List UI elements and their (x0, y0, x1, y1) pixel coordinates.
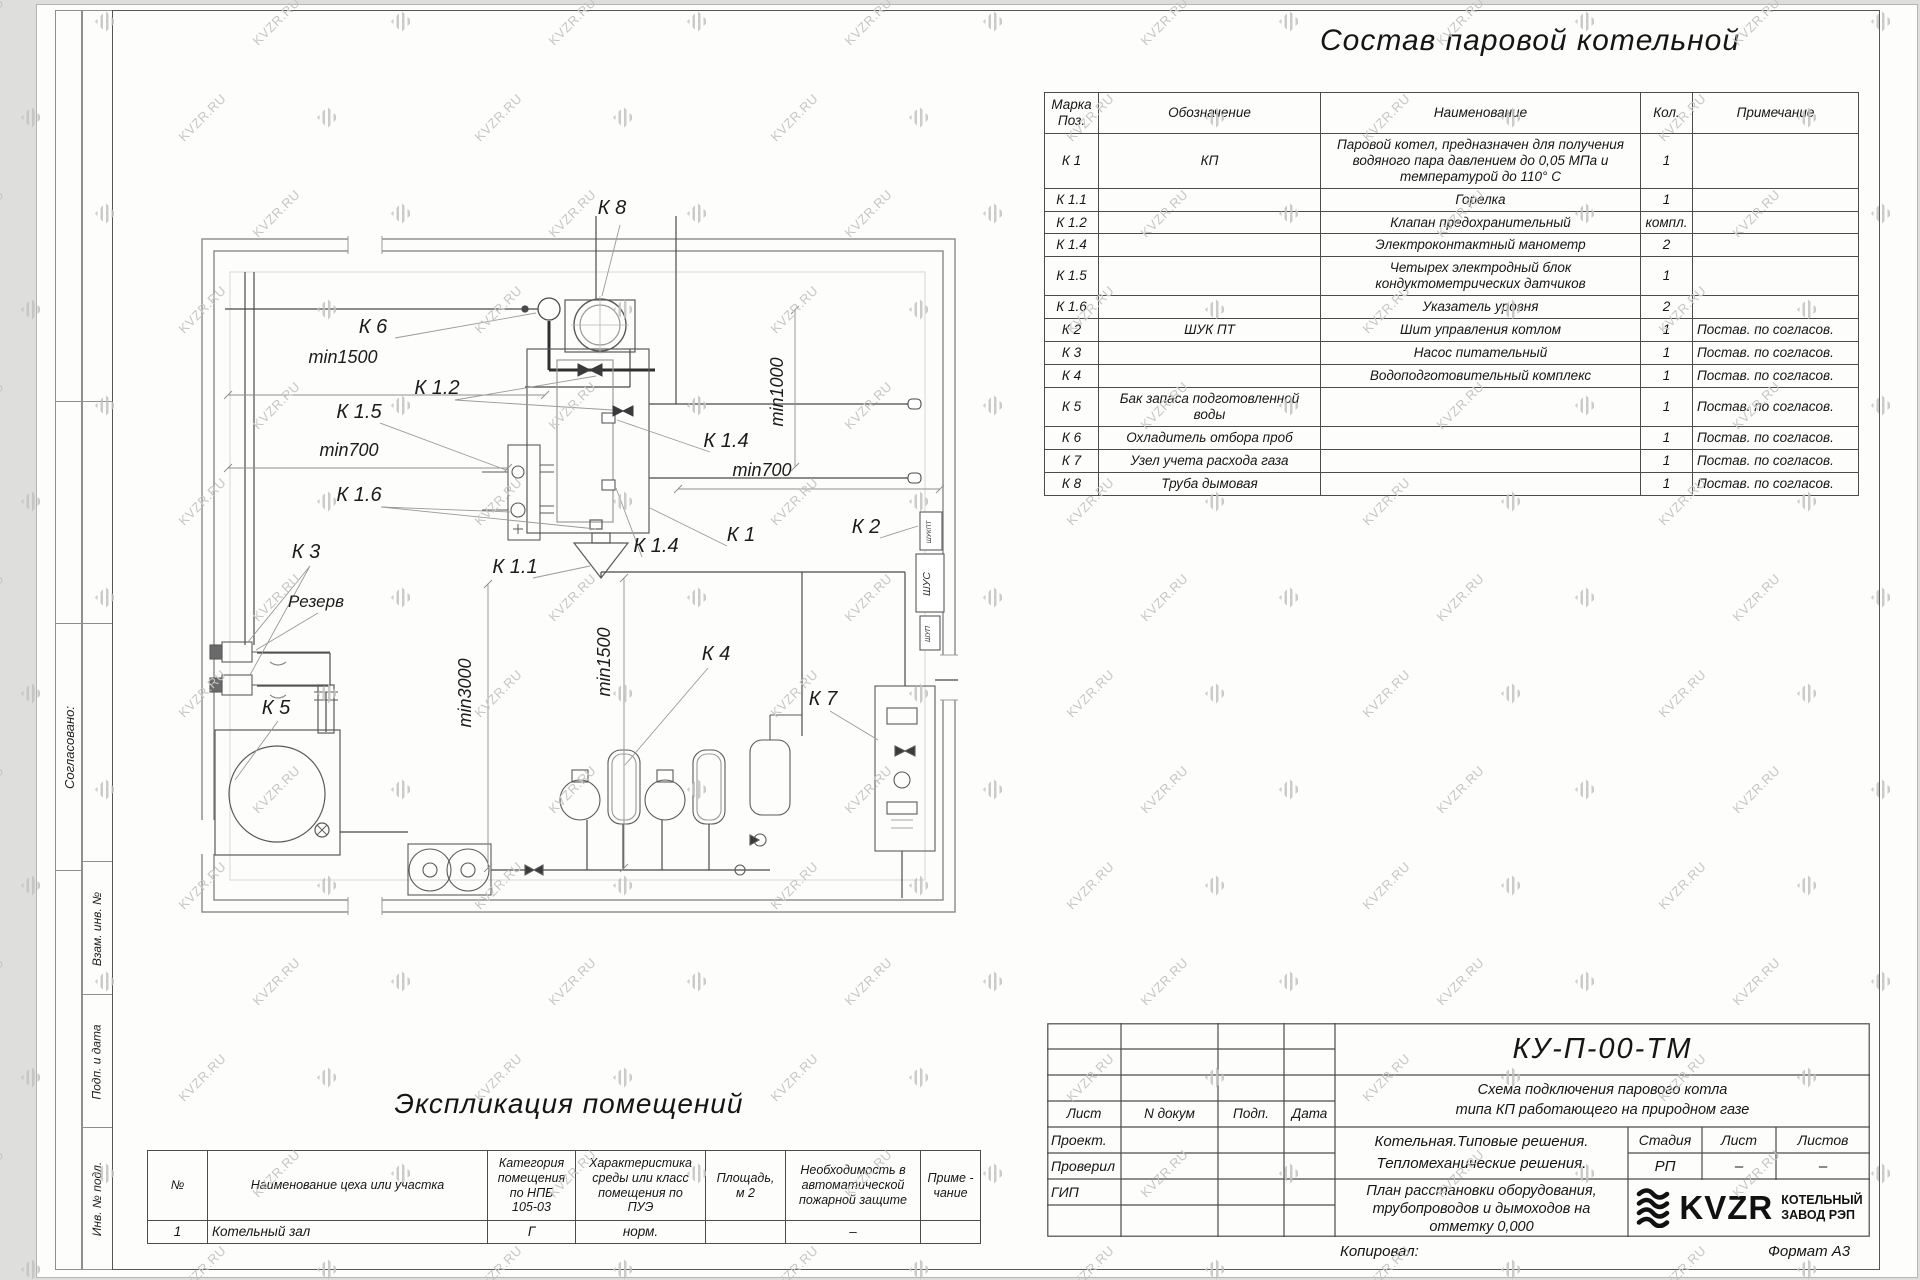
equipment-row: К 1.4Электроконтактный манометр2 (1045, 234, 1859, 257)
plan-label: К 3 (292, 541, 320, 563)
rooms-cell: 1 (148, 1221, 208, 1244)
equipment-cell (1099, 342, 1321, 365)
tb-sheet-title-1: План расстановки оборудования, (1337, 1183, 1626, 1199)
equipment-cell: Труба дымовая (1099, 472, 1321, 495)
divider (82, 401, 112, 402)
equipment-cell (1693, 234, 1859, 257)
plan-label: min1000 (767, 357, 787, 426)
equipment-cell: Указатель уровня (1321, 296, 1641, 319)
tb-doc-number: КУ-П-00-ТМ (1335, 1033, 1870, 1066)
plan-labels: К 8К 6min1500К 1.2К 1.5min700К 1.6К 1.4m… (262, 197, 880, 728)
equipment-cell: К 3 (1045, 342, 1099, 365)
rooms-row: 1Котельный залГнорм.– (148, 1221, 981, 1244)
plan-label: К 1 (727, 524, 755, 546)
plan-label: К 1.4 (633, 535, 678, 557)
vzam-label: Взам. инв. № (90, 891, 104, 965)
equipment-cell: 1 (1641, 319, 1693, 342)
equipment-cell (1099, 234, 1321, 257)
equipment-cell: Четырех электродный блок кондуктометриче… (1321, 257, 1641, 296)
podp-label: Подп. и дата (90, 1024, 104, 1099)
equipment-cell: К 6 (1045, 426, 1099, 449)
equipment-cell: Постав. по согласов. (1693, 364, 1859, 387)
equipment-cell (1693, 296, 1859, 319)
left-margin-strip-inner: Взам. инв. № Подп. и дата Инв. № подл. (81, 10, 113, 1270)
tb-sheets-value: – (1776, 1158, 1870, 1175)
inv-cell: Инв. № подл. (82, 1127, 112, 1269)
equipment-cell: К 2 (1045, 319, 1099, 342)
rooms-col-header: Необходимость в автоматической пожарной … (786, 1151, 921, 1221)
plan-label: min700 (319, 440, 378, 460)
equipment-cell: Водоподготовительный комплекс (1321, 364, 1641, 387)
tb-role-project: Проект. (1051, 1132, 1107, 1148)
rooms-table-wrap: №Наименование цеха или участкаКатегория … (147, 1150, 981, 1244)
tb-object-2: Тепломеханические решения. (1339, 1155, 1624, 1172)
equipment-cell (1321, 426, 1641, 449)
kvzr-logo-icon (1635, 1188, 1671, 1228)
equipment-row: К 6Охладитель отбора проб1Постав. по сог… (1045, 426, 1859, 449)
equipment-row: К 1.5Четырех электродный блок кондуктоме… (1045, 257, 1859, 296)
equipment-cell: Охладитель отбора проб (1099, 426, 1321, 449)
equipment-cell: Шит управления котлом (1321, 319, 1641, 342)
plan-piping (225, 216, 958, 898)
equipment-col-header: Примечание (1693, 93, 1859, 134)
plan-door-ticks (348, 236, 958, 915)
equipment-cell (1099, 211, 1321, 234)
equipment-cell: Постав. по согласов. (1693, 472, 1859, 495)
sensor-panel-k1-5 (482, 445, 554, 540)
equipment-cell: 1 (1641, 387, 1693, 426)
watermark-text: KVZR.RU (0, 955, 7, 1008)
equipment-cell: К 5 (1045, 387, 1099, 426)
tb-sheet-title-3: отметку 0,000 (1337, 1219, 1626, 1235)
equipment-cell: К 1.2 (1045, 211, 1099, 234)
plan-label: min700 (732, 460, 791, 480)
vzam-cell: Взам. инв. № (82, 861, 112, 995)
kvzr-logo-block: KVZR КОТЕЛЬНЫЙ ЗАВОД РЭП (1628, 1183, 1870, 1233)
equipment-cell (1693, 188, 1859, 211)
watermark-text: KVZR.RU (0, 0, 7, 48)
equipment-cell: Паровой котел, предназначен для получени… (1321, 133, 1641, 188)
tb-sheet-title-2: трубопроводов и дымоходов на (1337, 1201, 1626, 1217)
tb-sheets-label: Листов (1776, 1132, 1870, 1148)
rooms-cell: норм. (576, 1221, 706, 1244)
equipment-cell: Постав. по согласов. (1693, 449, 1859, 472)
equipment-cell: компл. (1641, 211, 1693, 234)
plan-label: К 1.4 (703, 430, 748, 452)
inv-label: Инв. № подл. (90, 1161, 104, 1235)
equipment-cell (1099, 257, 1321, 296)
tb-doc-title-1: Схема подключения парового котла (1335, 1082, 1870, 1098)
plan-label: К 1.2 (414, 377, 459, 399)
equipment-cell: К 4 (1045, 364, 1099, 387)
rooms-col-header: Приме - чание (921, 1151, 981, 1221)
plan-label: К 7 (809, 688, 838, 710)
pipe-endcaps (908, 399, 921, 483)
cabinet-label: ШУС (921, 572, 933, 596)
equipment-col-header: Кол. (1641, 93, 1693, 134)
equipment-cell: Узел учета расхода газа (1099, 449, 1321, 472)
watermark-text: KVZR.RU (0, 187, 7, 240)
sample-cooler-k6 (522, 298, 560, 320)
rooms-col-header: Наименование цеха или участка (208, 1151, 488, 1221)
plan-label: К 1.1 (492, 556, 537, 578)
equipment-row: К 1.2Клапан предохранительныйкомпл. (1045, 211, 1859, 234)
rooms-table: №Наименование цеха или участкаКатегория … (147, 1150, 981, 1244)
rooms-col-header: № (148, 1151, 208, 1221)
plan-label: К 2 (852, 516, 880, 538)
equipment-cell (1099, 296, 1321, 319)
equipment-cell: 1 (1641, 426, 1693, 449)
equipment-row: К 4Водоподготовительный комплекс1Постав.… (1045, 364, 1859, 387)
tb-stage-value: РП (1628, 1158, 1702, 1175)
watermark-text: KVZR.RU (0, 763, 7, 816)
tb-stage-label: Стадия (1628, 1132, 1702, 1148)
tb-sheet-label: Лист (1702, 1132, 1776, 1148)
plan-label: min1500 (308, 347, 377, 367)
rooms-cell: – (786, 1221, 921, 1244)
water-treatment-k4 (525, 715, 802, 875)
tb-role-gip: ГИП (1051, 1184, 1079, 1200)
equipment-cell: 1 (1641, 472, 1693, 495)
equipment-cell: К 1.4 (1045, 234, 1099, 257)
tb-sheet-value: – (1702, 1158, 1776, 1175)
twin-pump-unit (408, 844, 491, 895)
equipment-cell: 1 (1641, 342, 1693, 365)
plan-label: Резерв (288, 592, 344, 611)
equipment-cell (1693, 133, 1859, 188)
format-label: Формат А3 (1768, 1243, 1850, 1260)
plan-label: min3000 (455, 658, 475, 727)
equipment-row: К 8Труба дымовая1Постав. по согласов. (1045, 472, 1859, 495)
feed-pumps-k3 (210, 642, 330, 698)
divider (56, 401, 82, 402)
rooms-col-header: Категория помещения по НПБ 105-03 (488, 1151, 576, 1221)
tb-col-sign: Подп. (1218, 1106, 1284, 1121)
left-margin-strip-outer: Согласовано: (55, 10, 83, 1270)
agreed-cell: Согласовано: (56, 623, 82, 871)
dimension-lines (224, 306, 944, 872)
equipment-cell: 1 (1641, 188, 1693, 211)
plan-label: К 6 (359, 316, 388, 338)
equipment-cell: К 1.5 (1045, 257, 1099, 296)
equipment-row: К 3Насос питательный1Постав. по согласов… (1045, 342, 1859, 365)
equipment-cell: Бак запаса подготовленной воды (1099, 387, 1321, 426)
equipment-cell: 1 (1641, 449, 1693, 472)
kvzr-sub-1: КОТЕЛЬНЫЙ (1781, 1193, 1862, 1208)
equipment-cell: Постав. по согласов. (1693, 319, 1859, 342)
equipment-table-wrap: Марка Поз.ОбозначениеНаименованиеКол.При… (1044, 92, 1859, 496)
tb-object-1: Котельная.Типовые решения. (1339, 1133, 1624, 1150)
boiler-k1 (527, 296, 649, 578)
equipment-cell (1693, 257, 1859, 296)
equipment-cell: 1 (1641, 257, 1693, 296)
plan-label: min1500 (594, 627, 614, 696)
equipment-cell: К 8 (1045, 472, 1099, 495)
title-block: Лист N докум Подп. Дата Проект. Проверил… (1047, 1023, 1870, 1237)
tb-doc-title-2: типа КП работающего на природном газе (1335, 1102, 1870, 1118)
equipment-cell (1321, 472, 1641, 495)
equipment-cell: К 1.1 (1045, 188, 1099, 211)
equipment-row: К 2ШУК ПТШит управления котлом1Постав. п… (1045, 319, 1859, 342)
equipment-row: К 5Бак запаса подготовленной воды1Постав… (1045, 387, 1859, 426)
equipment-cell: К 1 (1045, 133, 1099, 188)
equipment-row: К 7Узел учета расхода газа1Постав. по со… (1045, 449, 1859, 472)
equipment-list-title: Состав паровой котельной (1230, 24, 1830, 58)
equipment-cell: Постав. по согласов. (1693, 426, 1859, 449)
plan-label: К 1.5 (336, 401, 382, 423)
agreed-label: Согласовано: (62, 706, 77, 789)
rooms-col-header: Характеристика среды или класс помещения… (576, 1151, 706, 1221)
equipment-col-header: Обозначение (1099, 93, 1321, 134)
kvzr-logo-subtext: КОТЕЛЬНЫЙ ЗАВОД РЭП (1781, 1193, 1862, 1223)
copied-label: Копировал: (1340, 1243, 1419, 1260)
equipment-cell (1099, 188, 1321, 211)
plan-door-gaps (199, 236, 958, 915)
equipment-col-header: Наименование (1321, 93, 1641, 134)
plan-label: К 4 (702, 643, 730, 665)
podp-cell: Подп. и дата (82, 994, 112, 1128)
equipment-cell: К 7 (1045, 449, 1099, 472)
plan-label: К 1.6 (336, 484, 382, 506)
kvzr-logo-text: KVZR (1679, 1189, 1773, 1227)
kvzr-sub-2: ЗАВОД РЭП (1781, 1208, 1862, 1223)
rooms-cell: Г (488, 1221, 576, 1244)
equipment-cell: 1 (1641, 133, 1693, 188)
equipment-cell: 2 (1641, 234, 1693, 257)
divider (82, 623, 112, 624)
equipment-cell: ШУК ПТ (1099, 319, 1321, 342)
gas-unit-k7 (875, 686, 935, 851)
floor-plan: ШУКПТШУСШУП К 8К 6 (150, 180, 980, 940)
equipment-cell: Клапан предохранительный (1321, 211, 1641, 234)
cabinet-label: ШУП (925, 625, 932, 642)
plan-label: К 5 (262, 697, 291, 719)
equipment-cell (1321, 449, 1641, 472)
rooms-cell: Котельный зал (208, 1221, 488, 1244)
watermark-text: KVZR.RU (0, 571, 7, 624)
rooms-cell (706, 1221, 786, 1244)
rooms-cell (921, 1221, 981, 1244)
plan-label: К 8 (598, 197, 626, 219)
equipment-cell: Насос питательный (1321, 342, 1641, 365)
watermark-text: KVZR.RU (0, 379, 7, 432)
equipment-cell: 2 (1641, 296, 1693, 319)
tb-role-checked: Проверил (1051, 1158, 1115, 1174)
equipment-cell (1693, 211, 1859, 234)
cabinet-label: ШУКПТ (926, 520, 933, 544)
equipment-row: К 1.6Указатель уровня2 (1045, 296, 1859, 319)
tb-col-doc: N докум (1121, 1106, 1218, 1121)
rooms-col-header: Площадь, м 2 (706, 1151, 786, 1221)
tb-col-date: Дата (1284, 1106, 1335, 1121)
rooms-table-title: Экспликация помещений (269, 1088, 869, 1120)
equipment-cell: КП (1099, 133, 1321, 188)
equipment-cell: Электроконтактный манометр (1321, 234, 1641, 257)
equipment-row: К 1КППаровой котел, предназначен для пол… (1045, 133, 1859, 188)
drawing-page: Согласовано: Взам. инв. № Подп. и дата И… (0, 0, 1920, 1280)
equipment-col-header: Марка Поз. (1045, 93, 1099, 134)
equipment-cell (1321, 387, 1641, 426)
watermark-text: KVZR.RU (0, 1147, 7, 1200)
equipment-row: К 1.1Горелка1 (1045, 188, 1859, 211)
equipment-cell: Постав. по согласов. (1693, 387, 1859, 426)
equipment-cell: Горелка (1321, 188, 1641, 211)
tb-col-sheet: Лист (1047, 1106, 1121, 1121)
equipment-cell: Постав. по согласов. (1693, 342, 1859, 365)
equipment-cell: 1 (1641, 364, 1693, 387)
equipment-table: Марка Поз.ОбозначениеНаименованиеКол.При… (1044, 92, 1859, 496)
equipment-cell: К 1.6 (1045, 296, 1099, 319)
equipment-cell (1099, 364, 1321, 387)
